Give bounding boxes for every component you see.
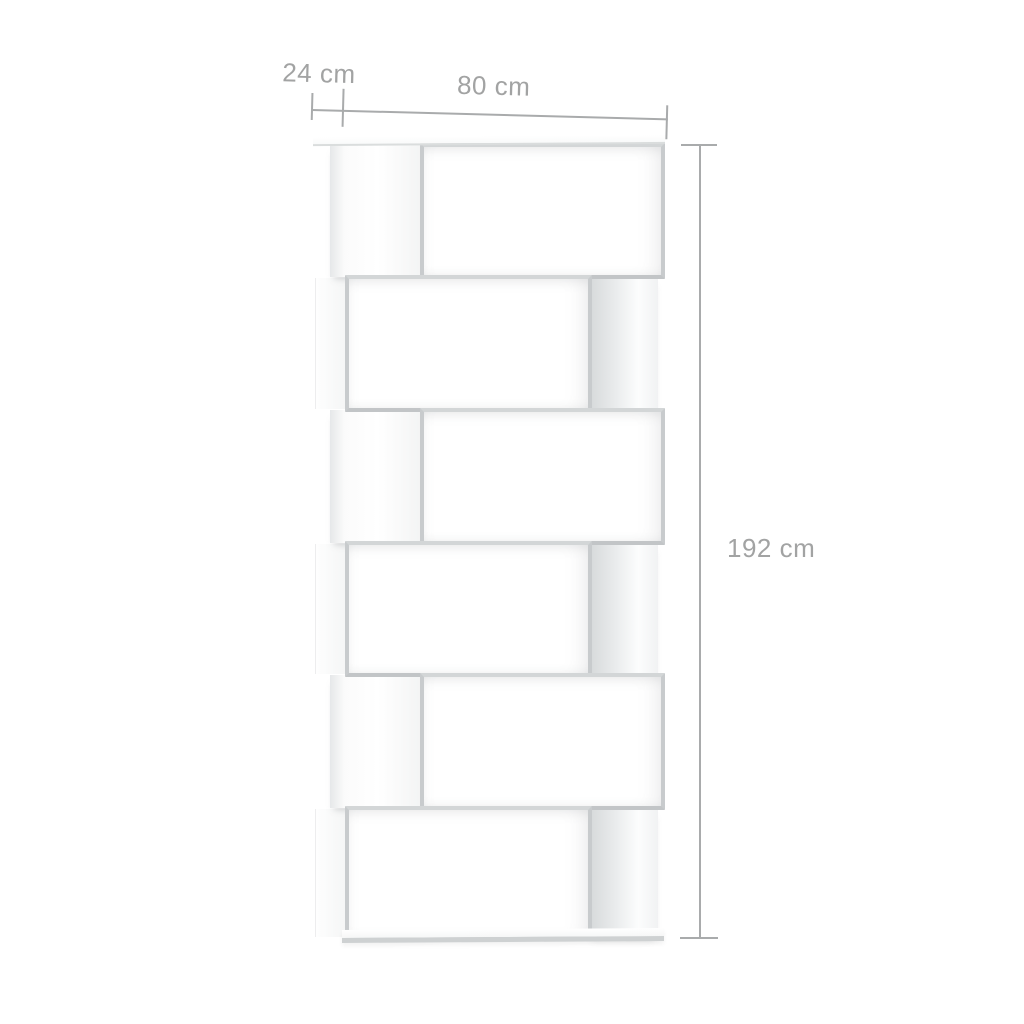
tier-1-side-panel [330, 145, 422, 277]
top-dimension-line [312, 109, 668, 120]
tier-2-compartment [345, 275, 592, 412]
tier-2-side-sliver [315, 278, 345, 409]
height-dimension-tick-bottom [680, 937, 718, 939]
tier-4-side-panel [588, 543, 658, 675]
height-dimension-group: 192 cm [680, 144, 860, 944]
tier-4 [313, 541, 665, 677]
tier-6-side-panel [588, 808, 658, 938]
tier-6-side-sliver [315, 809, 345, 937]
depth-dimension-label: 24 cm [271, 57, 368, 90]
tier-6-compartment [345, 806, 592, 940]
tier-1 [313, 143, 665, 279]
tier-3 [313, 408, 665, 545]
tier-4-side-sliver [315, 544, 345, 674]
product-dimension-diagram: 24 cm 80 cm 192 cm [0, 0, 1024, 1024]
width-dimension-label: 80 cm [445, 69, 542, 102]
tier-2-side-panel [588, 277, 658, 410]
top-dimension-tick-middle [342, 89, 345, 127]
bookshelf [313, 136, 665, 948]
tier-3-side-panel [330, 410, 422, 543]
height-dimension-tick-top [681, 144, 717, 146]
tier-1-compartment [420, 143, 665, 279]
tier-3-compartment [420, 408, 665, 545]
top-dimension-tick-left [311, 93, 314, 120]
tier-6 [313, 806, 665, 940]
tier-5 [313, 673, 665, 810]
height-dimension-label: 192 cm [727, 533, 857, 563]
tier-4-compartment [345, 541, 592, 677]
tier-5-compartment [420, 673, 665, 810]
tier-5-side-panel [330, 675, 422, 808]
bookshelf-bottom-board [342, 928, 664, 943]
height-dimension-line [699, 144, 701, 939]
tier-2 [313, 275, 665, 412]
top-dimension-tick-right [665, 105, 668, 139]
